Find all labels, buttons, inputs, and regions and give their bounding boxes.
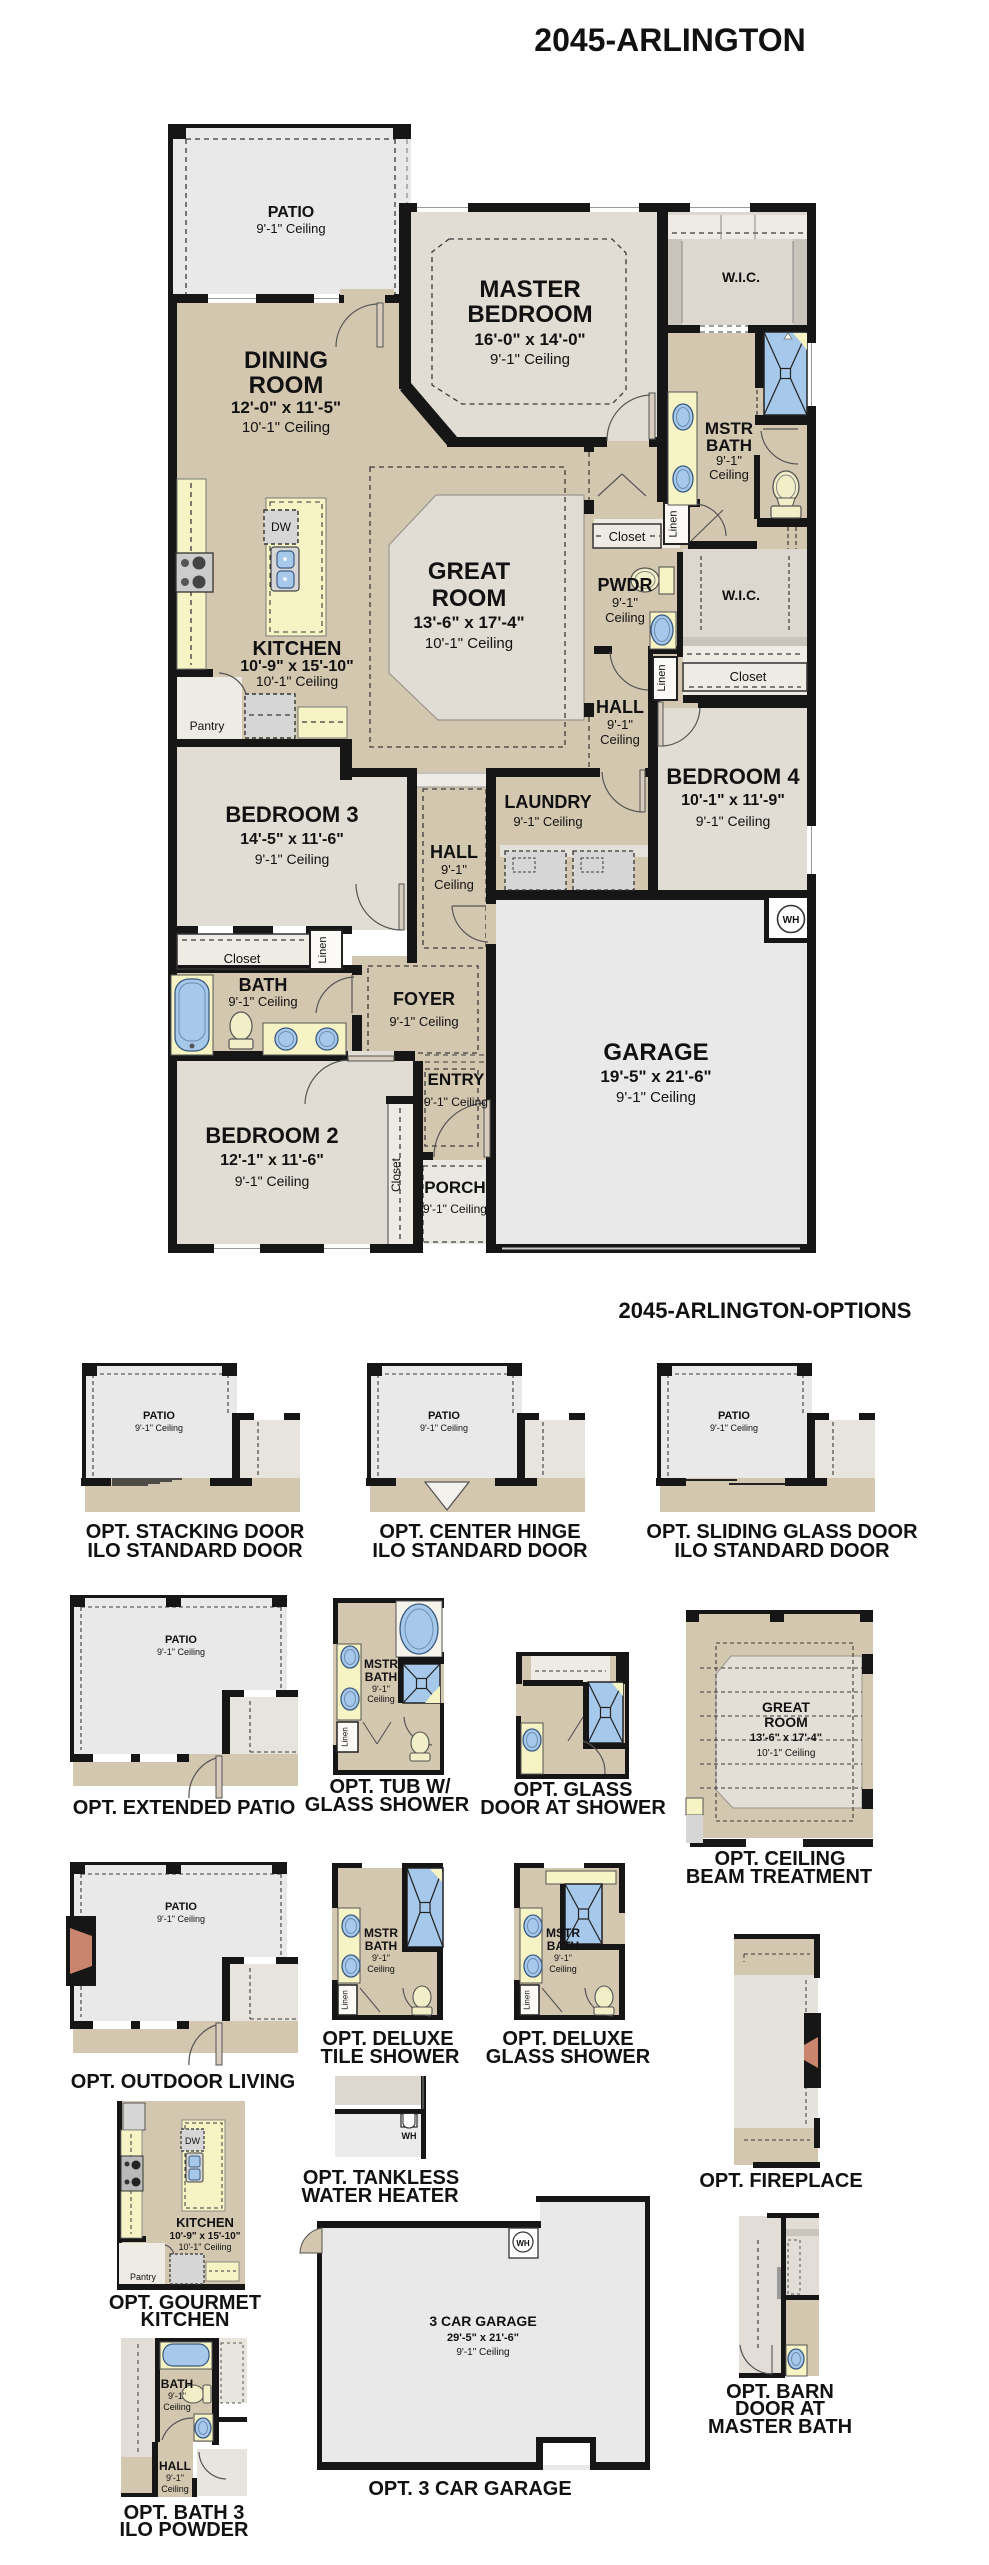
svg-text:9'-1" Ceiling: 9'-1" Ceiling [228,994,297,1009]
svg-text:OPT. FIREPLACE: OPT. FIREPLACE [699,2170,862,2192]
svg-text:Ceiling: Ceiling [600,732,640,747]
svg-text:WATER HEATER: WATER HEATER [301,2185,459,2207]
svg-text:PATIO: PATIO [718,1410,750,1422]
svg-text:PORCH: PORCH [424,1178,485,1197]
svg-text:9'-1" Ceiling: 9'-1" Ceiling [616,1089,696,1106]
svg-text:OPT. OUTDOOR LIVING: OPT. OUTDOOR LIVING [71,2071,295,2093]
svg-text:9'-1": 9'-1" [372,1953,390,1963]
svg-text:PATIO: PATIO [143,1410,175,1422]
svg-text:19'-5" x 21'-6": 19'-5" x 21'-6" [600,1067,711,1086]
svg-text:ROOM: ROOM [764,1714,808,1730]
svg-text:PATIO: PATIO [165,1901,197,1913]
svg-text:9'-1": 9'-1" [716,453,742,468]
svg-text:Linen: Linen [341,1727,350,1747]
svg-text:9'-1" Ceiling: 9'-1" Ceiling [420,1423,468,1433]
svg-text:DOOR AT SHOWER: DOOR AT SHOWER [480,1797,666,1819]
svg-text:ILO STANDARD DOOR: ILO STANDARD DOOR [372,1540,588,1562]
svg-text:KITCHEN: KITCHEN [141,2309,230,2331]
svg-text:9'-1" Ceiling: 9'-1" Ceiling [423,1202,487,1216]
svg-text:HALL: HALL [159,2459,191,2473]
svg-text:WH: WH [783,915,800,926]
svg-text:9'-1" Ceiling: 9'-1" Ceiling [696,813,771,829]
svg-text:W.I.C.: W.I.C. [722,269,760,285]
svg-text:DW: DW [271,520,292,534]
svg-text:9'-1": 9'-1" [554,1953,572,1963]
svg-text:MSTR: MSTR [364,1926,398,1940]
svg-text:BEDROOM 4: BEDROOM 4 [666,764,800,789]
svg-text:9'-1": 9'-1" [612,595,638,610]
svg-text:9'-1" Ceiling: 9'-1" Ceiling [389,1014,458,1029]
svg-text:BATH: BATH [365,1939,397,1953]
svg-text:PATIO: PATIO [428,1410,460,1422]
svg-text:ROOM: ROOM [249,372,324,399]
svg-text:13'-6" x 17'-4": 13'-6" x 17'-4" [413,613,524,632]
svg-text:ILO STANDARD DOOR: ILO STANDARD DOOR [674,1540,890,1562]
svg-text:Pantry: Pantry [130,2272,157,2282]
svg-text:TILE SHOWER: TILE SHOWER [321,2046,460,2068]
svg-text:Linen: Linen [656,665,668,692]
svg-text:FOYER: FOYER [393,989,455,1009]
svg-text:9'-1" Ceiling: 9'-1" Ceiling [490,351,570,368]
svg-text:ROOM: ROOM [432,585,507,612]
svg-text:Linen: Linen [317,937,329,964]
svg-text:Pantry: Pantry [190,719,225,733]
svg-text:9'-1" Ceiling: 9'-1" Ceiling [424,1095,488,1109]
svg-text:9'-1": 9'-1" [607,717,633,732]
svg-text:Ceiling: Ceiling [367,1964,395,1974]
svg-text:BEDROOM: BEDROOM [467,301,592,328]
svg-text:PATIO: PATIO [165,1634,197,1646]
svg-text:29'-5" x 21'-6": 29'-5" x 21'-6" [447,2332,519,2344]
svg-text:Linen: Linen [523,1990,532,2010]
svg-text:OPT. 3 CAR GARAGE: OPT. 3 CAR GARAGE [368,2478,571,2500]
svg-text:PWDR: PWDR [598,575,653,595]
svg-text:10'-1" Ceiling: 10'-1" Ceiling [256,673,338,689]
svg-text:9'-1" Ceiling: 9'-1" Ceiling [256,221,325,236]
svg-text:OPT. EXTENDED PATIO: OPT. EXTENDED PATIO [73,1797,296,1819]
svg-text:Closet: Closet [730,669,767,684]
svg-text:Ceiling: Ceiling [161,2484,189,2494]
svg-text:BATH: BATH [365,1670,397,1684]
svg-text:KITCHEN: KITCHEN [253,638,342,660]
svg-text:9'-1" Ceiling: 9'-1" Ceiling [157,1914,205,1924]
svg-text:Closet: Closet [389,1157,403,1192]
svg-text:WH: WH [402,2131,417,2141]
svg-text:Ceiling: Ceiling [605,610,645,625]
svg-text:WH: WH [516,2239,530,2248]
svg-text:MASTER BATH: MASTER BATH [708,2416,852,2438]
svg-text:GREAT: GREAT [428,558,511,585]
svg-text:10'-1" Ceiling: 10'-1" Ceiling [757,1748,816,1759]
svg-text:MSTR: MSTR [546,1926,580,1940]
svg-text:ILO POWDER: ILO POWDER [120,2519,249,2541]
svg-text:GARAGE: GARAGE [603,1039,708,1066]
svg-text:10'-1" Ceiling: 10'-1" Ceiling [242,419,330,436]
svg-text:DW: DW [185,2136,200,2146]
svg-text:KITCHEN: KITCHEN [176,2215,234,2230]
svg-text:3 CAR GARAGE: 3 CAR GARAGE [429,2313,536,2329]
svg-text:2045-ARLINGTON-OPTIONS: 2045-ARLINGTON-OPTIONS [619,1298,912,1323]
svg-text:MSTR: MSTR [364,1657,398,1671]
svg-text:9'-1" Ceiling: 9'-1" Ceiling [710,1423,758,1433]
svg-text:9'-1" Ceiling: 9'-1" Ceiling [456,2347,509,2358]
svg-text:Ceiling: Ceiling [367,1694,395,1704]
svg-text:MASTER: MASTER [479,276,580,303]
svg-text:BATH: BATH [547,1939,579,1953]
svg-text:9'-1": 9'-1" [166,2473,184,2483]
svg-text:9'-1" Ceiling: 9'-1" Ceiling [135,1423,183,1433]
svg-text:Linen: Linen [668,511,680,538]
svg-text:ENTRY: ENTRY [428,1070,486,1089]
svg-text:PATIO: PATIO [268,204,315,221]
svg-text:BEDROOM 2: BEDROOM 2 [205,1123,338,1148]
svg-text:10'-1" x 11'-9": 10'-1" x 11'-9" [681,792,785,809]
svg-text:9'-1": 9'-1" [168,2391,186,2401]
svg-text:GREAT: GREAT [762,1699,810,1715]
svg-text:9'-1" Ceiling: 9'-1" Ceiling [235,1173,310,1189]
svg-text:HALL: HALL [430,842,478,862]
svg-text:9'-1" Ceiling: 9'-1" Ceiling [255,851,330,867]
svg-text:BATH: BATH [239,975,288,995]
svg-text:W.I.C.: W.I.C. [722,587,760,603]
svg-text:14'-5" x 11'-6": 14'-5" x 11'-6" [240,831,344,848]
svg-text:12'-1" x 11'-6": 12'-1" x 11'-6" [220,1152,324,1169]
svg-text:10'-1" Ceiling: 10'-1" Ceiling [425,635,513,652]
svg-text:9'-1": 9'-1" [441,862,467,877]
svg-text:DINING: DINING [244,347,328,374]
svg-text:12'-0" x 11'-5": 12'-0" x 11'-5" [231,398,341,417]
svg-text:16'-0" x 14'-0": 16'-0" x 14'-0" [474,330,585,349]
svg-text:Ceiling: Ceiling [163,2402,191,2412]
svg-text:GLASS SHOWER: GLASS SHOWER [305,1794,470,1816]
svg-text:Closet: Closet [224,951,261,966]
svg-text:BATH: BATH [161,2377,193,2391]
svg-text:Ceiling: Ceiling [709,467,749,482]
svg-text:LAUNDRY: LAUNDRY [504,792,591,812]
svg-text:Linen: Linen [341,1990,350,2010]
svg-text:9'-1": 9'-1" [372,1684,390,1694]
svg-text:2045-ARLINGTON: 2045-ARLINGTON [534,22,805,58]
svg-text:13'-6" x 17'-4": 13'-6" x 17'-4" [750,1732,822,1744]
svg-text:GLASS SHOWER: GLASS SHOWER [486,2046,651,2068]
svg-text:Ceiling: Ceiling [549,1964,577,1974]
svg-text:9'-1" Ceiling: 9'-1" Ceiling [157,1647,205,1657]
svg-text:ILO STANDARD DOOR: ILO STANDARD DOOR [87,1540,303,1562]
svg-text:9'-1" Ceiling: 9'-1" Ceiling [513,814,582,829]
svg-text:BEAM TREATMENT: BEAM TREATMENT [686,1866,872,1888]
svg-text:10'-9" x 15'-10": 10'-9" x 15'-10" [170,2231,241,2242]
svg-text:10'-1" Ceiling: 10'-1" Ceiling [179,2242,232,2252]
svg-text:BEDROOM 3: BEDROOM 3 [225,802,358,827]
svg-text:Closet: Closet [609,529,646,544]
svg-text:Ceiling: Ceiling [434,877,474,892]
svg-text:HALL: HALL [596,697,644,717]
